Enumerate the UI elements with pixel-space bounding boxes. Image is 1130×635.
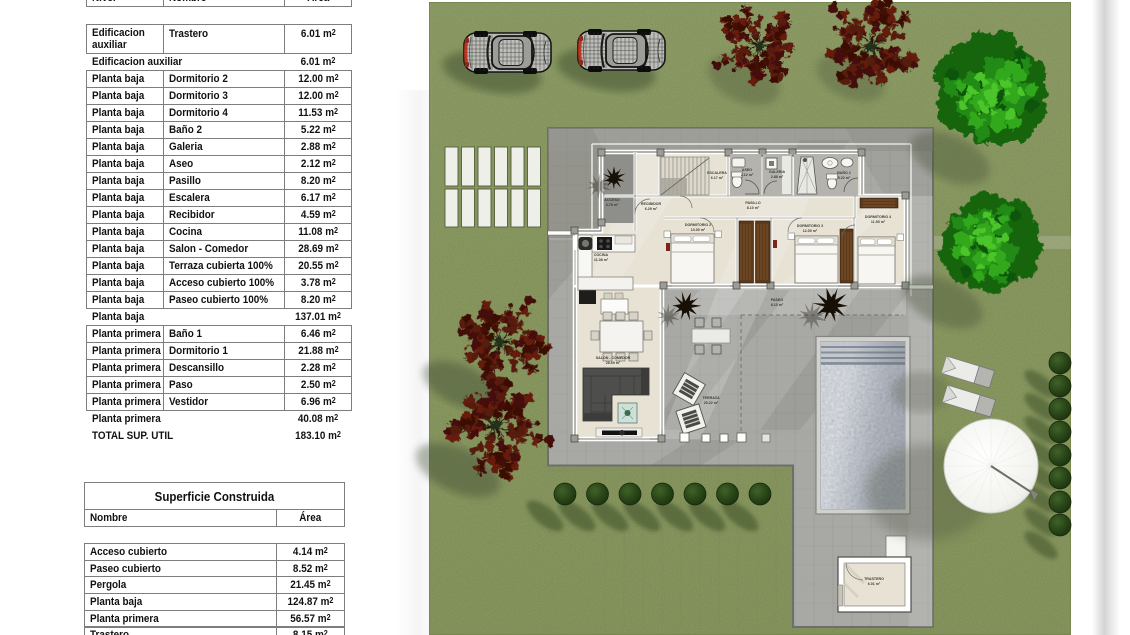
svg-text:ASEO: ASEO [742,168,752,172]
svg-text:PASILLO: PASILLO [745,201,761,205]
svg-text:PASEO: PASEO [771,298,784,302]
svg-text:ESCALERA: ESCALERA [707,171,727,175]
svg-text:8.10 m²: 8.10 m² [747,206,760,210]
svg-text:11.53 m²: 11.53 m² [871,220,886,224]
svg-text:20.22 m²: 20.22 m² [704,401,719,405]
svg-text:13.00 m²: 13.00 m² [691,228,706,232]
svg-text:12.00 m²: 12.00 m² [803,229,818,233]
svg-text:6.17 m²: 6.17 m² [711,176,724,180]
svg-text:SALON - COMEDOR: SALON - COMEDOR [596,356,631,360]
svg-text:28.69 m²: 28.69 m² [606,361,621,365]
svg-text:6.01 m²: 6.01 m² [868,582,881,586]
svg-text:BAÑO 2: BAÑO 2 [837,170,851,175]
svg-text:11.08 m²: 11.08 m² [594,258,609,262]
svg-text:DORMITORIO 2: DORMITORIO 2 [685,223,711,227]
svg-text:RECIBIDOR: RECIBIDOR [641,202,662,206]
svg-text:8.10 m²: 8.10 m² [771,303,784,307]
svg-text:2.12 m²: 2.12 m² [741,173,754,177]
svg-text:GALERIA: GALERIA [769,170,786,174]
svg-text:DORMITORIO 4: DORMITORIO 4 [865,215,891,219]
svg-text:6.29 m²: 6.29 m² [645,207,658,211]
svg-text:COCINA: COCINA [594,253,609,257]
svg-text:TERRAZA: TERRAZA [702,396,720,400]
svg-text:3.78 m²: 3.78 m² [606,203,619,207]
svg-text:2.88 m²: 2.88 m² [771,175,784,179]
svg-text:ACCESO: ACCESO [604,198,620,202]
svg-text:TRASTERO: TRASTERO [864,577,884,581]
svg-text:5.22 m²: 5.22 m² [838,176,851,180]
svg-text:DORMITORIO 3: DORMITORIO 3 [797,224,823,228]
